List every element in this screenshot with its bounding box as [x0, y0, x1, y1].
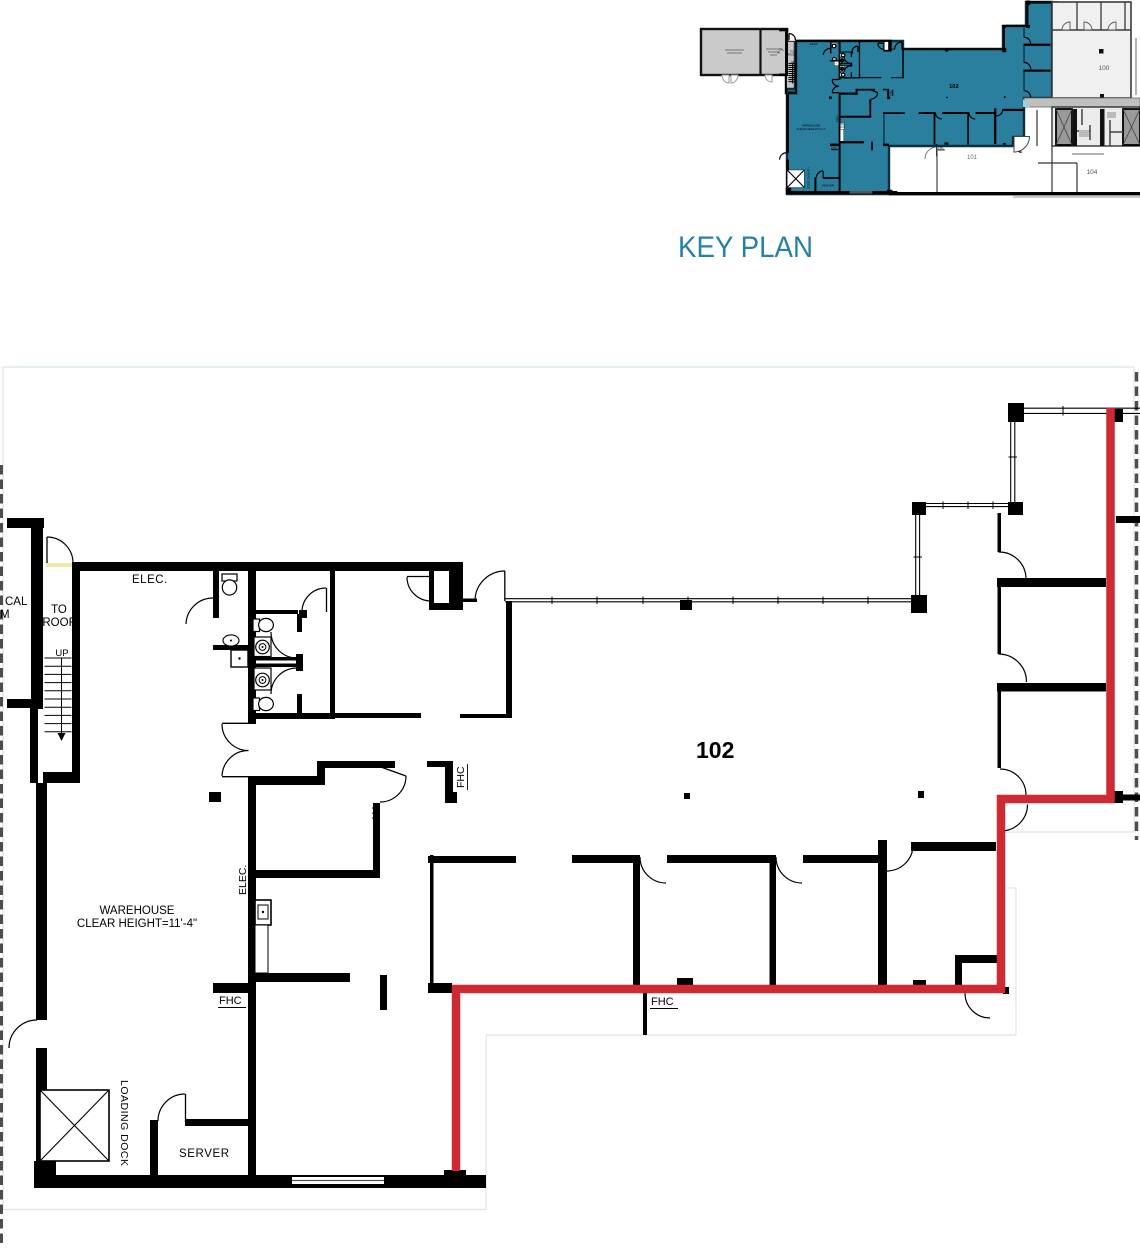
svg-text:101: 101	[967, 155, 978, 161]
svg-text:100: 100	[1099, 65, 1110, 72]
svg-text:104: 104	[1087, 169, 1098, 176]
svg-text:KEY PLAN: KEY PLAN	[678, 231, 813, 264]
